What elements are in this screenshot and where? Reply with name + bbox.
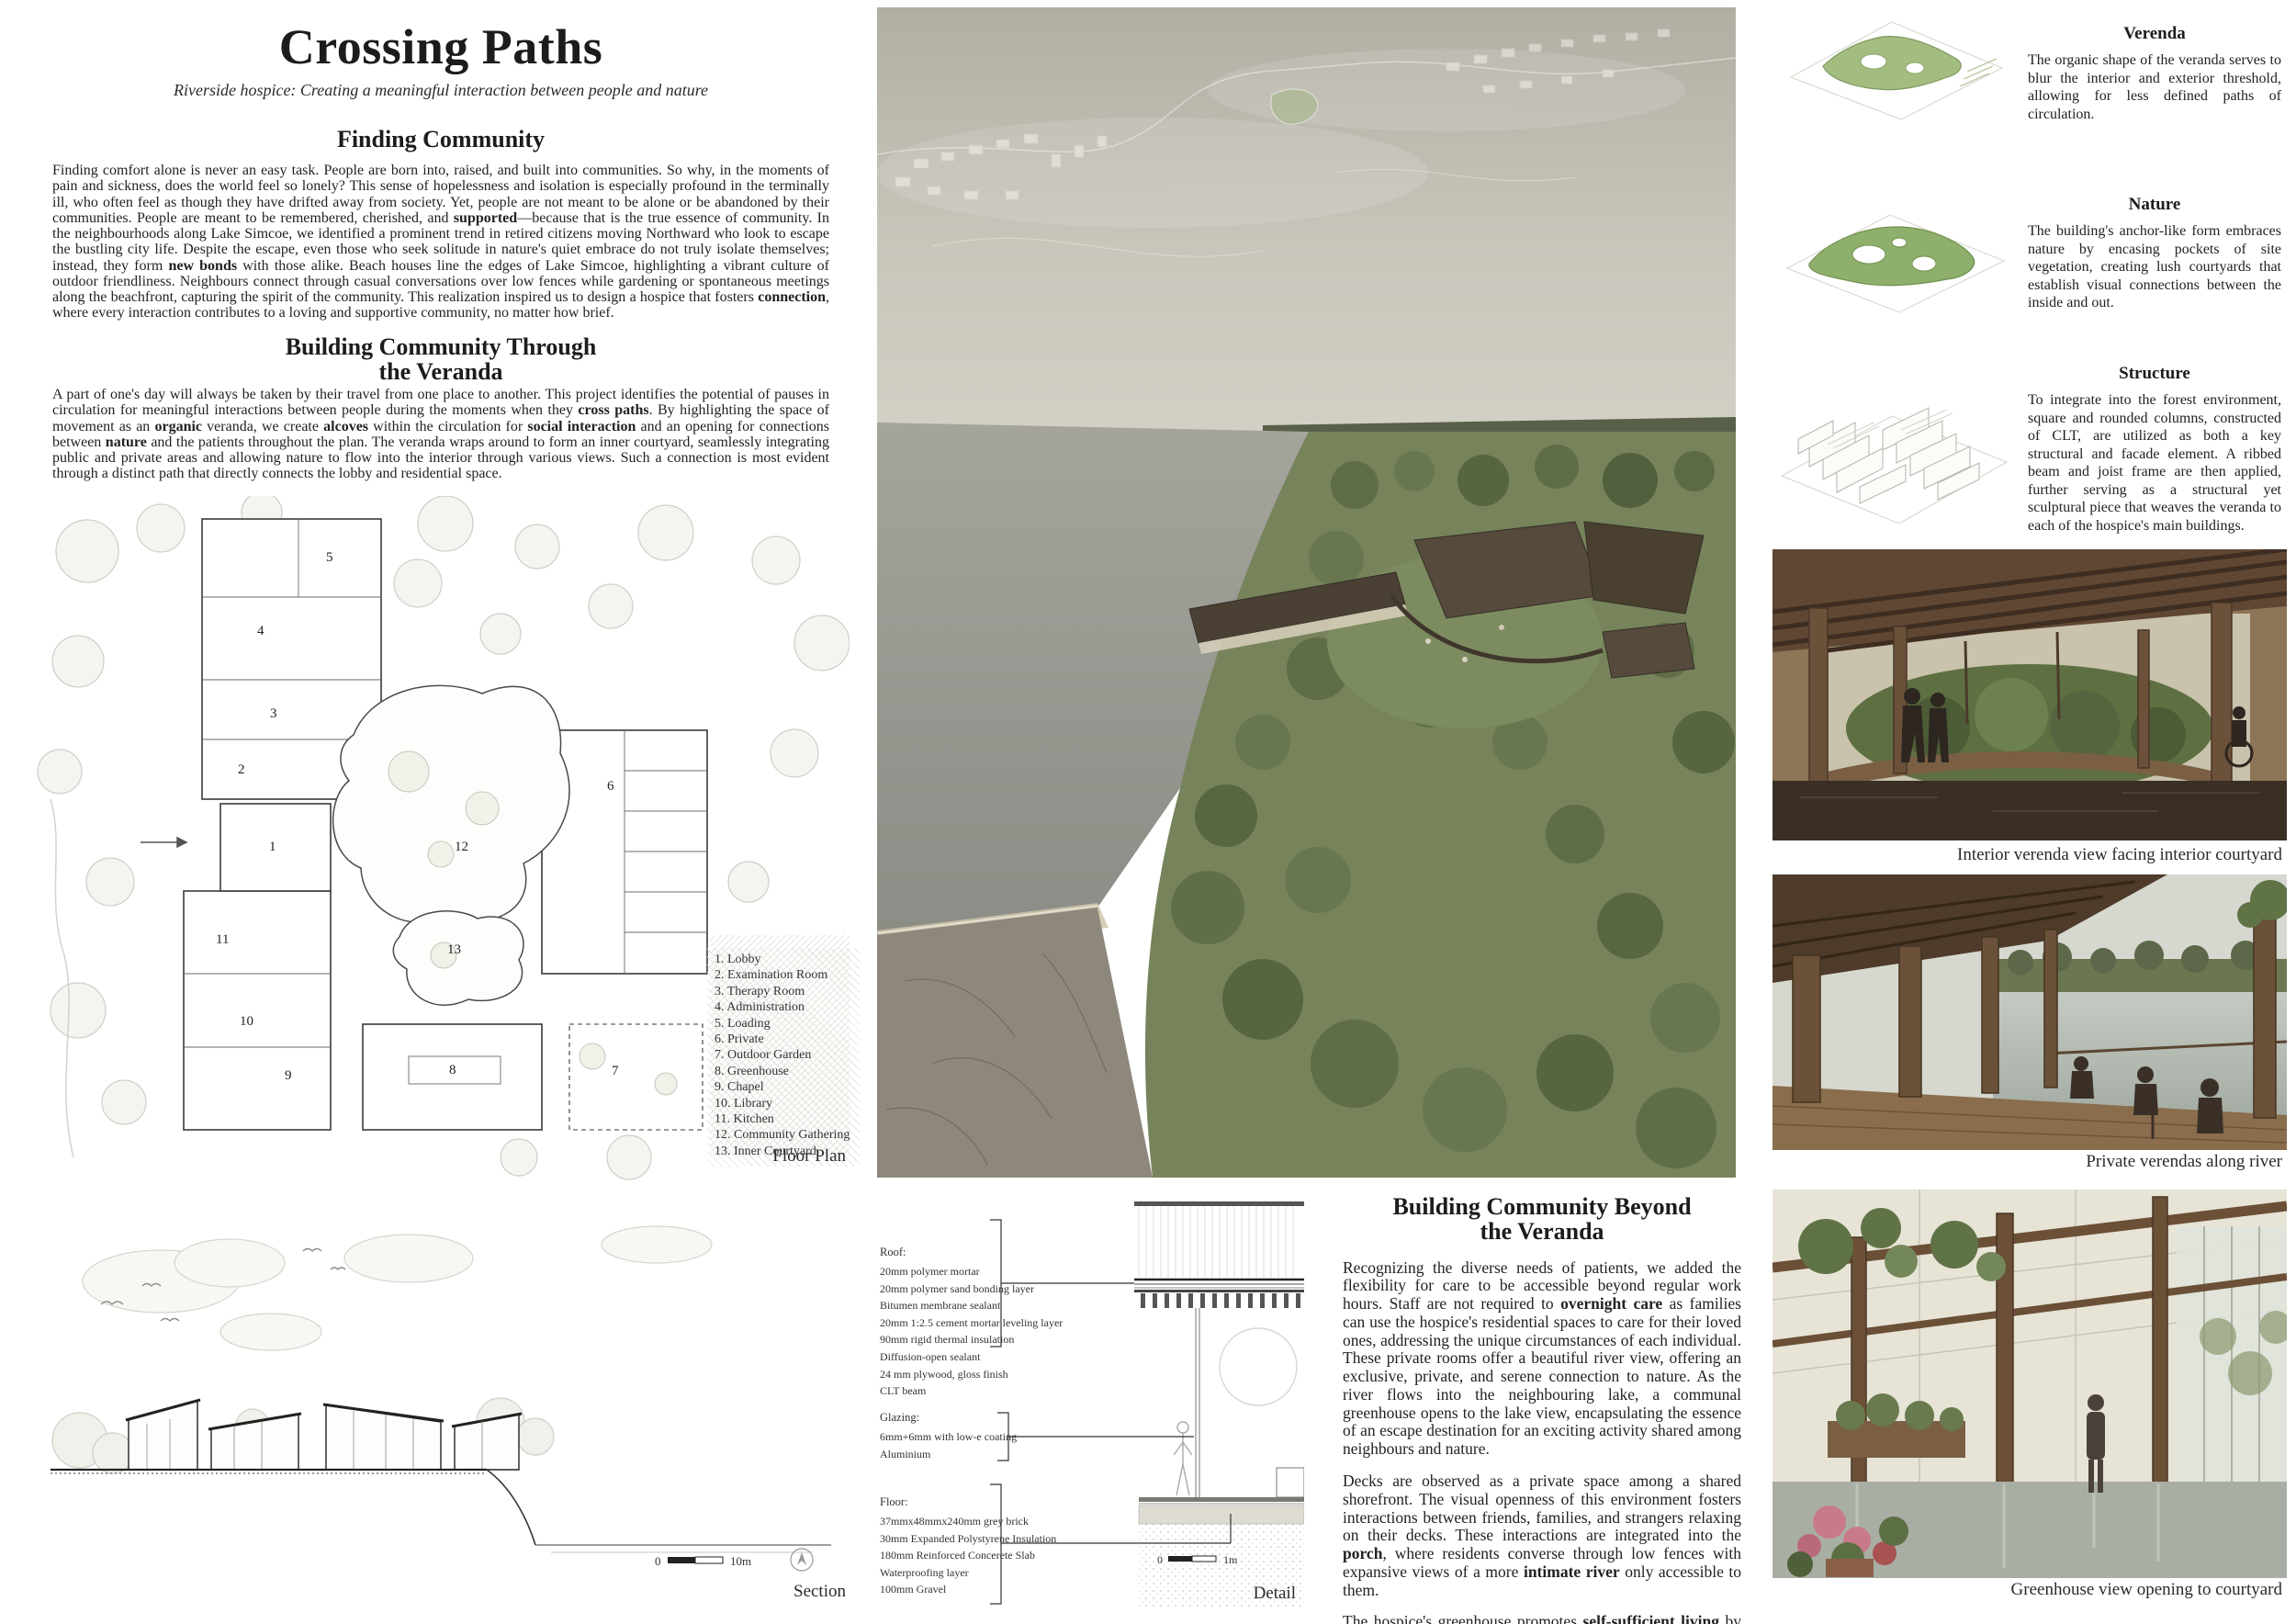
list-item: 2. Examination Room (715, 969, 852, 982)
list-item: 6. Private (715, 1033, 852, 1046)
floor-label: Floor: (880, 1495, 1054, 1509)
floor-layers: 37mmx48mmx240mm grey brick30mm Expanded … (880, 1515, 1054, 1596)
svg-text:7: 7 (612, 1064, 619, 1078)
list-item: 100mm Gravel (880, 1583, 1054, 1596)
svg-text:0: 0 (1157, 1553, 1163, 1566)
heading-line: the Veranda (1480, 1218, 1604, 1245)
list-item: CLT beam (880, 1384, 1036, 1398)
heading-line: Building Community Beyond (1392, 1193, 1691, 1220)
list-item: 11. Kitchen (715, 1113, 852, 1126)
aerial-render (877, 7, 1736, 1178)
svg-text:1m: 1m (1223, 1553, 1238, 1566)
list-item: 20mm polymer mortar (880, 1265, 1036, 1279)
svg-text:11: 11 (216, 932, 229, 947)
nature-heading: Nature (2028, 195, 2281, 215)
interior-veranda-photo (1773, 549, 2287, 840)
heading-line: the Veranda (378, 358, 502, 385)
svg-text:3: 3 (270, 706, 277, 721)
glazing-lines (1196, 1308, 1199, 1497)
svg-text:6: 6 (607, 779, 614, 794)
floor-plan-caption: Floor Plan (643, 1146, 846, 1167)
beyond-paragraph-2: Decks are observed as a private space am… (1343, 1472, 1741, 1599)
roof-layers: 20mm polymer mortar20mm polymer sand bon… (880, 1265, 1036, 1398)
wall-slabs (1798, 408, 1979, 503)
page-title: Crossing Paths (55, 18, 827, 75)
svg-text:12: 12 (455, 840, 468, 854)
svg-text:1: 1 (269, 840, 276, 854)
shoreline-sketch (51, 799, 73, 1157)
structure-heading: Structure (2028, 364, 2281, 384)
page-subtitle: Riverside hospice: Creating a meaningful… (55, 81, 827, 100)
verenda-body: The organic shape of the veranda serves … (2028, 51, 2281, 123)
private-photo-caption: Private verendas along river (1823, 1152, 2282, 1172)
list-item: 180mm Reinforced Concerete Slab (880, 1549, 1054, 1562)
svg-text:10m: 10m (730, 1554, 751, 1568)
list-item: Aluminium (880, 1448, 1036, 1461)
list-item: 37mmx48mmx240mm grey brick (880, 1515, 1054, 1528)
beyond-paragraph-3: The hospice's greenhouse promotes self-s… (1343, 1613, 1741, 1624)
finding-community-paragraph: Finding comfort alone is never an easy t… (52, 163, 829, 321)
glazing-layers: 6mm+6mm with low-e coatingAluminium (880, 1430, 1036, 1461)
list-item: 30mm Expanded Polystyrene Insulation (880, 1532, 1054, 1546)
list-item: 8. Greenhouse (715, 1066, 852, 1078)
list-item: 9. Chapel (715, 1081, 852, 1094)
roof-assembly (1134, 1280, 1304, 1308)
list-item: Bitumen membrane sealant (880, 1299, 1036, 1313)
veranda-roof-shape (1823, 37, 1961, 90)
svg-text:9: 9 (285, 1068, 292, 1083)
veranda-diagram (1773, 11, 2013, 121)
entry-arrow (141, 838, 186, 847)
heading-line: Building Community Through (286, 333, 597, 360)
section-buildings (126, 1400, 522, 1470)
ground-line (51, 1470, 831, 1552)
section-drawing: 0 10m (23, 1194, 850, 1589)
list-item: 7. Outdoor Garden (715, 1049, 852, 1062)
floor-plan-legend: 1. Lobby2. Examination Room3. Therapy Ro… (707, 948, 860, 1167)
building-form-shape (1809, 227, 1975, 286)
building-through-paragraph: A part of one's day will always be taken… (52, 387, 829, 482)
list-item: Diffusion-open sealant (880, 1350, 1036, 1364)
roof-label: Roof: (880, 1246, 1036, 1259)
list-item: 12. Community Gathering (715, 1129, 852, 1142)
svg-text:4: 4 (257, 624, 264, 638)
glazing-label: Glazing: (880, 1411, 1036, 1425)
private-veranda-photo (1773, 874, 2287, 1150)
list-item: 5. Loading (715, 1018, 852, 1031)
nature-body: The building's anchor-like form embraces… (2028, 222, 2281, 312)
svg-text:10: 10 (240, 1014, 253, 1029)
svg-text:0: 0 (655, 1554, 661, 1568)
planter (1277, 1468, 1304, 1497)
verenda-heading: Verenda (2028, 24, 2281, 44)
north-arrow-icon (797, 1552, 806, 1565)
list-item: Waterproofing layer (880, 1566, 1054, 1580)
structure-diagram (1773, 366, 2013, 531)
upper-wall (1139, 1206, 1293, 1278)
beyond-section: Building Community Beyond the Veranda Re… (1343, 1194, 1741, 1624)
beyond-heading: Building Community Beyond the Veranda (1343, 1194, 1741, 1245)
cliff (877, 908, 1153, 1178)
beyond-paragraph-1: Recognizing the diverse needs of patient… (1343, 1259, 1741, 1459)
list-item: 24 mm plywood, gloss finish (880, 1368, 1036, 1382)
glazing-callout: Glazing: 6mm+6mm with low-e coatingAlumi… (880, 1411, 1036, 1464)
detail-caption: Detail (1148, 1584, 1296, 1604)
floor-callout: Floor: 37mmx48mmx240mm grey brick30mm Ex… (880, 1495, 1054, 1600)
section-caption: Section (643, 1582, 846, 1602)
list-item: 1. Lobby (715, 953, 852, 966)
interior-photo-caption: Interior verenda view facing interior co… (1823, 845, 2282, 865)
parapet (1134, 1201, 1304, 1206)
svg-text:13: 13 (447, 942, 461, 957)
list-item: 90mm rigid thermal insulation (880, 1333, 1036, 1347)
greenhouse-photo-caption: Greenhouse view opening to courtyard (1823, 1580, 2282, 1600)
clouds (83, 1226, 712, 1350)
list-item: 6mm+6mm with low-e coating (880, 1430, 1036, 1444)
list-item: 20mm polymer sand bonding layer (880, 1282, 1036, 1296)
svg-text:8: 8 (449, 1063, 456, 1077)
presentation-board: Crossing Paths Riverside hospice: Creati… (0, 0, 2296, 1624)
building-through-heading: Building Community Through the Veranda (55, 334, 827, 385)
roof-callout: Roof: 20mm polymer mortar20mm polymer sa… (880, 1246, 1036, 1402)
svg-text:2: 2 (238, 762, 245, 777)
finding-community-heading: Finding Community (55, 127, 827, 152)
person-figure (1174, 1422, 1192, 1495)
list-item: 20mm 1:2.5 cement mortar leveling layer (880, 1316, 1036, 1330)
nature-diagram (1773, 204, 2013, 314)
svg-text:5: 5 (326, 550, 333, 565)
tree-sketch (1220, 1328, 1297, 1405)
structure-body: To integrate into the forest environment… (2028, 391, 2281, 535)
greenhouse-photo (1773, 1190, 2287, 1578)
list-item: 4. Administration (715, 1001, 852, 1014)
list-item: 3. Therapy Room (715, 986, 852, 998)
list-item: 10. Library (715, 1098, 852, 1111)
